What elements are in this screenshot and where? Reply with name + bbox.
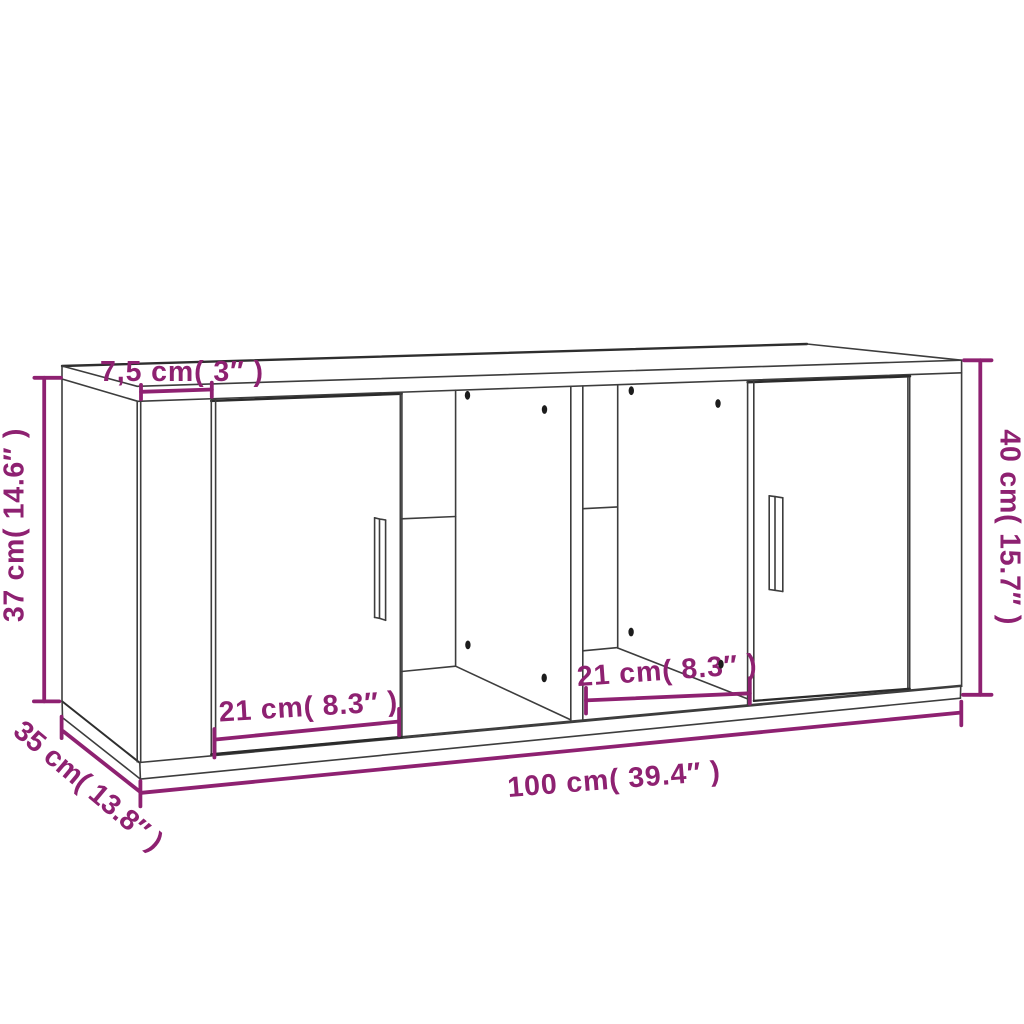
svg-text:37 cm( 14.6″ ): 37 cm( 14.6″ ) [0, 429, 31, 623]
svg-text:7,5 cm( 3″ ): 7,5 cm( 3″ ) [100, 356, 263, 388]
svg-text:40 cm( 15.7″ ): 40 cm( 15.7″ ) [993, 429, 1024, 624]
